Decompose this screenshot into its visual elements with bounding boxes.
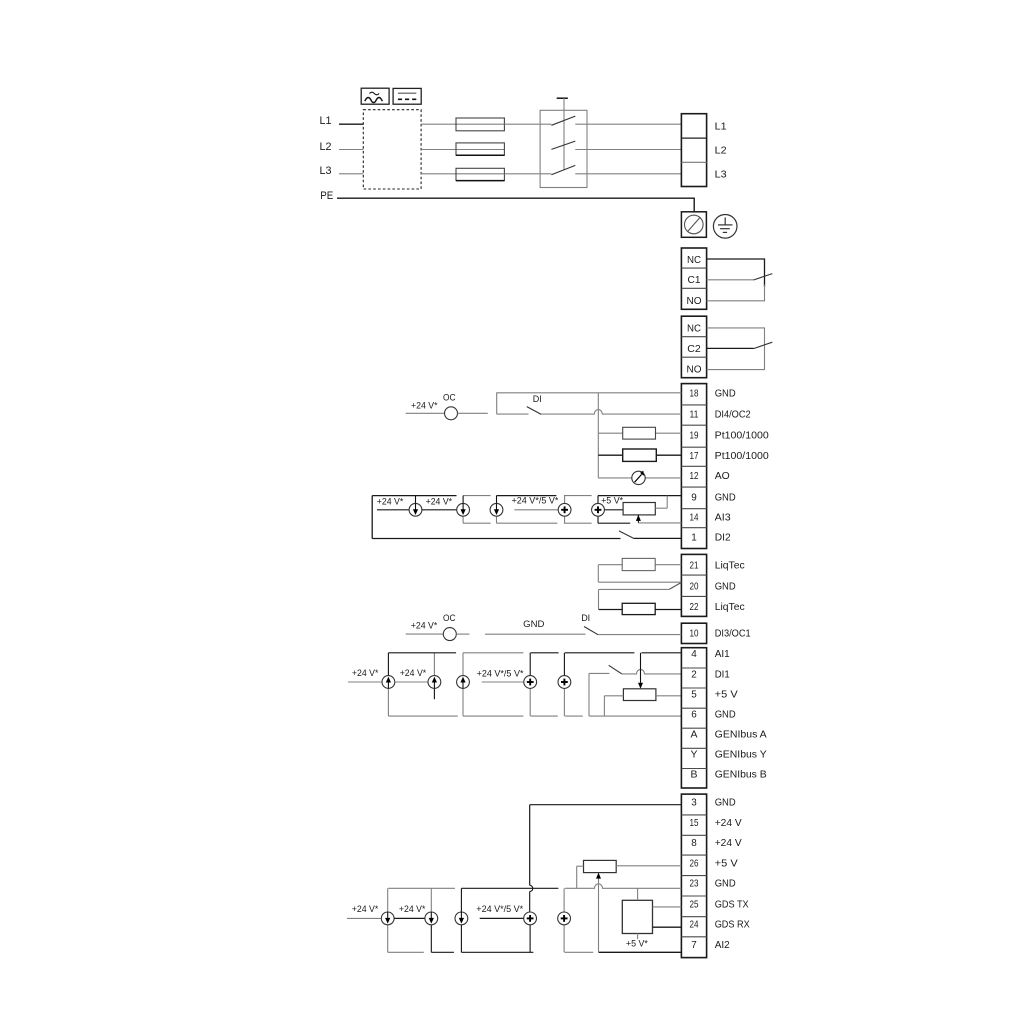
svg-text:+5 V*: +5 V* <box>601 496 623 506</box>
svg-text:GENIbus A: GENIbus A <box>715 729 767 741</box>
svg-text:GND: GND <box>715 581 736 593</box>
svg-text:11: 11 <box>690 409 699 421</box>
svg-text:L1: L1 <box>320 115 332 127</box>
svg-text:17: 17 <box>690 450 699 462</box>
svg-text:26: 26 <box>690 857 699 869</box>
svg-text:DI2: DI2 <box>715 532 731 544</box>
svg-text:NO: NO <box>687 363 702 375</box>
svg-text:AO: AO <box>715 470 730 482</box>
svg-text:DI3/OC1: DI3/OC1 <box>715 628 751 640</box>
svg-text:NO: NO <box>687 295 702 307</box>
svg-text:14: 14 <box>690 512 699 524</box>
svg-text:OC: OC <box>443 392 456 402</box>
svg-text:GND: GND <box>715 878 736 890</box>
svg-text:1: 1 <box>691 532 697 544</box>
svg-text:22: 22 <box>690 601 699 613</box>
svg-text:20: 20 <box>690 581 699 593</box>
svg-text:10: 10 <box>690 628 699 640</box>
svg-text:25: 25 <box>690 898 699 910</box>
svg-text:12: 12 <box>690 470 699 482</box>
svg-text:DI: DI <box>533 394 542 404</box>
svg-text:AI3: AI3 <box>715 512 731 524</box>
svg-text:PE: PE <box>320 190 333 202</box>
svg-text:+5 V: +5 V <box>715 688 738 700</box>
svg-text:2: 2 <box>691 668 697 680</box>
svg-text:18: 18 <box>690 388 699 400</box>
svg-text:+24 V*: +24 V* <box>411 621 438 631</box>
svg-text:7: 7 <box>691 939 697 951</box>
svg-text:B: B <box>691 769 698 781</box>
svg-text:Y: Y <box>691 749 698 761</box>
svg-text:NC: NC <box>687 254 701 266</box>
svg-text:NC: NC <box>687 322 701 334</box>
svg-text:21: 21 <box>690 560 699 572</box>
svg-text:+5 V: +5 V <box>715 857 738 869</box>
svg-text:DI: DI <box>581 613 590 623</box>
svg-text:+24 V: +24 V <box>715 817 742 829</box>
svg-text:3: 3 <box>691 796 697 808</box>
svg-text:A: A <box>691 729 698 741</box>
svg-text:19: 19 <box>690 430 699 442</box>
svg-text:Pt100/1000: Pt100/1000 <box>715 450 769 462</box>
svg-text:+24 V*: +24 V* <box>352 668 379 678</box>
svg-text:6: 6 <box>691 708 697 720</box>
svg-text:+24 V: +24 V <box>715 837 742 849</box>
svg-text:GND: GND <box>715 796 736 808</box>
svg-text:5: 5 <box>691 688 697 700</box>
svg-text:4: 4 <box>691 648 697 660</box>
svg-text:+5 V*: +5 V* <box>626 939 648 949</box>
svg-text:Pt100/1000: Pt100/1000 <box>715 430 769 442</box>
svg-text:9: 9 <box>691 491 697 503</box>
svg-text:GND: GND <box>715 388 736 400</box>
svg-text:LiqTec: LiqTec <box>715 560 745 572</box>
svg-text:C2: C2 <box>687 343 701 355</box>
svg-text:OC: OC <box>443 613 456 623</box>
svg-text:L1: L1 <box>715 120 727 132</box>
svg-text:L2: L2 <box>320 141 332 153</box>
svg-text:8: 8 <box>691 837 697 849</box>
svg-text:GDS TX: GDS TX <box>715 898 749 910</box>
svg-text:+24 V*/5 V*: +24 V*/5 V* <box>512 496 559 506</box>
svg-text:+24 V*: +24 V* <box>377 496 404 506</box>
svg-text:DI1: DI1 <box>715 668 730 680</box>
svg-text:15: 15 <box>690 817 699 829</box>
svg-text:L3: L3 <box>320 165 332 177</box>
svg-text:+24 V*: +24 V* <box>400 668 427 678</box>
svg-text:+24 V*/5 V*: +24 V*/5 V* <box>476 904 523 914</box>
svg-text:AI1: AI1 <box>715 648 730 660</box>
svg-text:L2: L2 <box>715 145 727 157</box>
svg-text:23: 23 <box>690 878 699 890</box>
svg-text:GND: GND <box>715 491 736 503</box>
svg-text:LiqTec: LiqTec <box>715 601 745 613</box>
svg-text:+24 V*: +24 V* <box>399 904 426 914</box>
svg-text:GENIbus Y: GENIbus Y <box>715 749 767 761</box>
svg-text:+24 V*/5 V*: +24 V*/5 V* <box>477 668 524 678</box>
svg-text:+24 V*: +24 V* <box>411 401 438 411</box>
svg-text:L3: L3 <box>715 169 727 181</box>
svg-text:24: 24 <box>690 919 699 931</box>
svg-text:GND: GND <box>523 619 545 629</box>
svg-text:+24 V*: +24 V* <box>426 496 453 506</box>
svg-text:GDS RX: GDS RX <box>715 919 750 931</box>
svg-text:AI2: AI2 <box>715 939 730 951</box>
svg-text:+24 V*: +24 V* <box>352 904 379 914</box>
svg-text:C1: C1 <box>688 274 701 286</box>
svg-text:DI4/OC2: DI4/OC2 <box>715 409 751 421</box>
svg-text:GENIbus B: GENIbus B <box>715 769 767 781</box>
svg-text:GND: GND <box>715 708 736 720</box>
